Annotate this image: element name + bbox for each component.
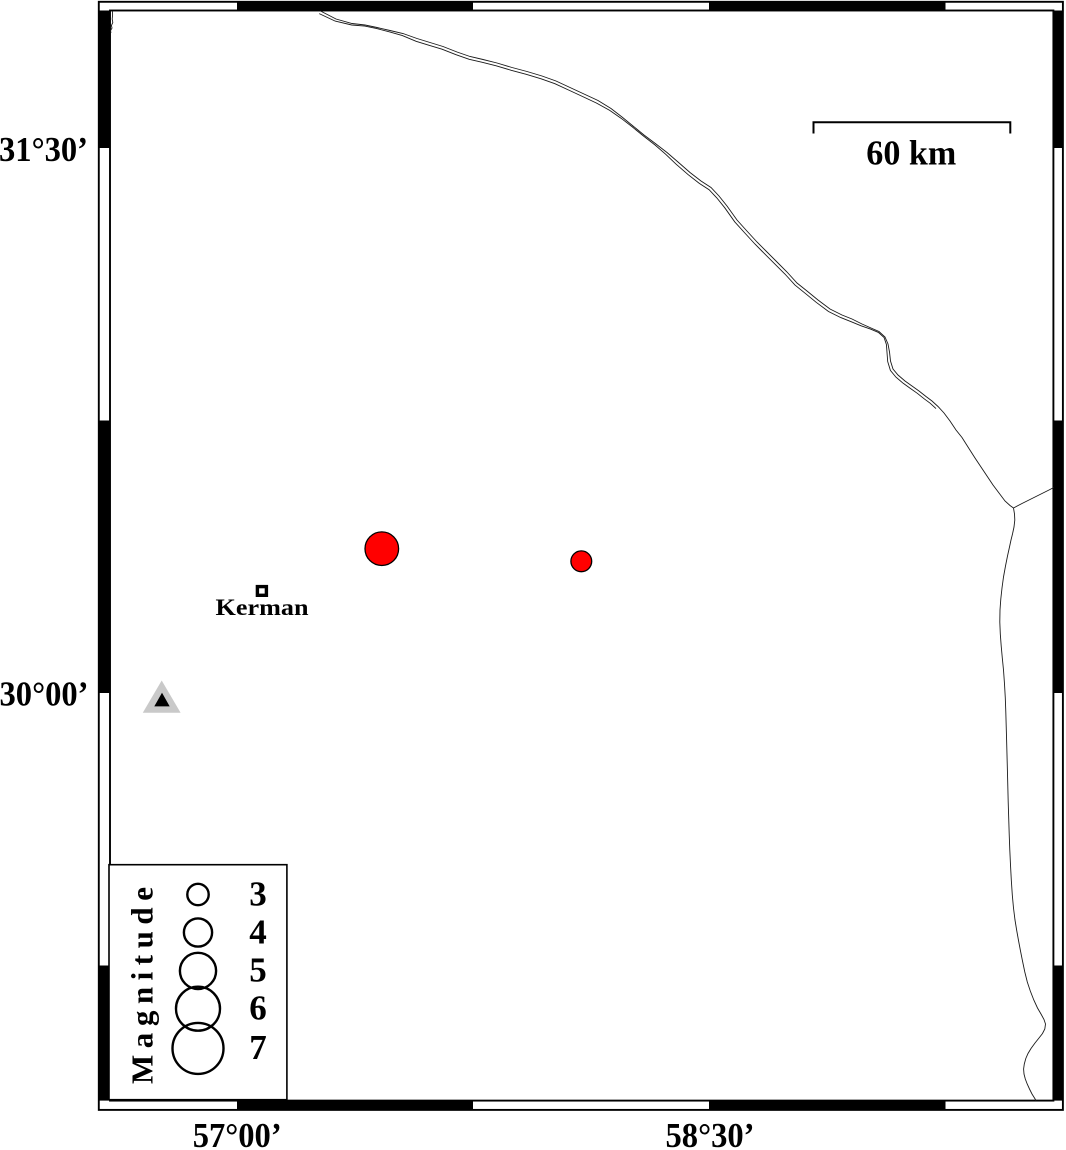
svg-text:4: 4 bbox=[249, 912, 267, 951]
svg-text:57°00’: 57°00’ bbox=[193, 1116, 282, 1150]
svg-text:3: 3 bbox=[249, 874, 267, 913]
svg-text:6: 6 bbox=[249, 989, 267, 1028]
svg-text:30°00’: 30°00’ bbox=[0, 675, 89, 714]
svg-text:60 km: 60 km bbox=[866, 134, 956, 173]
svg-text:5: 5 bbox=[249, 951, 267, 990]
svg-text:Magnitude: Magnitude bbox=[125, 881, 160, 1084]
svg-text:31°30’: 31°30’ bbox=[0, 130, 88, 169]
svg-text:58°30’: 58°30’ bbox=[666, 1116, 755, 1150]
svg-text:7: 7 bbox=[249, 1028, 267, 1067]
svg-text:Kerman: Kerman bbox=[216, 595, 309, 621]
